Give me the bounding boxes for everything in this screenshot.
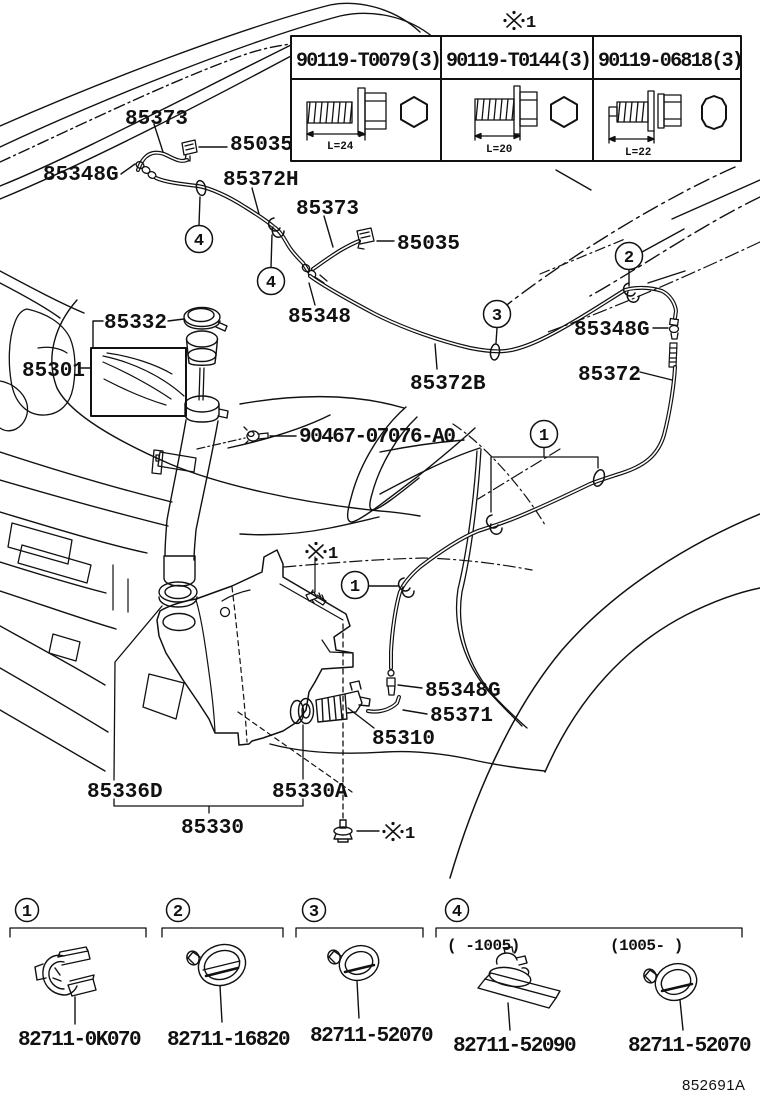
svg-text:2: 2 [173,903,183,922]
svg-text:85330A: 85330A [272,781,348,804]
svg-text:85372: 85372 [578,364,641,387]
svg-text:85372H: 85372H [223,169,299,192]
svg-text:85371: 85371 [430,705,493,728]
svg-text:82711-52070: 82711-52070 [628,1035,751,1058]
svg-text:85301: 85301 [22,360,85,383]
svg-text:90467-07076-A0: 90467-07076-A0 [299,426,455,449]
svg-text:82711-52090: 82711-52090 [453,1035,576,1058]
svg-text:85310: 85310 [372,728,435,751]
svg-text:82711-52070: 82711-52070 [310,1025,433,1048]
svg-text:(1005- ): (1005- ) [610,937,683,955]
svg-text:85373: 85373 [296,198,359,221]
svg-text:85372B: 85372B [410,373,486,396]
svg-text:2: 2 [624,249,634,268]
svg-text:1: 1 [22,903,32,922]
svg-text:85373: 85373 [125,108,188,131]
svg-text:85330: 85330 [181,817,244,840]
svg-text:90119-T0079(3): 90119-T0079(3) [296,50,440,73]
svg-text:85348G: 85348G [574,319,650,342]
svg-text:85348G: 85348G [43,164,119,187]
svg-text:( -1005): ( -1005) [447,937,520,955]
svg-text:4: 4 [194,232,204,251]
svg-text:82711-0K070: 82711-0K070 [18,1029,141,1052]
svg-text:1: 1 [539,427,549,446]
svg-text:852691A: 852691A [682,1077,746,1094]
svg-text:90119-T0144(3): 90119-T0144(3) [446,50,590,73]
svg-text:1: 1 [350,578,360,597]
svg-text:L=24: L=24 [327,141,354,153]
svg-text:85332: 85332 [104,312,167,335]
svg-text:85035: 85035 [230,134,293,157]
svg-text:1: 1 [328,545,338,564]
svg-text:1: 1 [405,825,415,844]
svg-text:L=22: L=22 [625,147,651,159]
svg-text:85035: 85035 [397,233,460,256]
svg-text:3: 3 [492,307,502,326]
svg-text:82711-16820: 82711-16820 [167,1029,290,1052]
svg-text:85348: 85348 [288,306,351,329]
svg-text:85348G: 85348G [425,680,501,703]
svg-text:85336D: 85336D [87,781,163,804]
svg-text:4: 4 [266,274,276,293]
svg-text:3: 3 [309,903,319,922]
svg-text:1: 1 [526,14,536,33]
svg-text:90119-06818(3): 90119-06818(3) [598,50,742,73]
svg-text:4: 4 [452,903,462,922]
svg-text:L=20: L=20 [486,144,512,156]
